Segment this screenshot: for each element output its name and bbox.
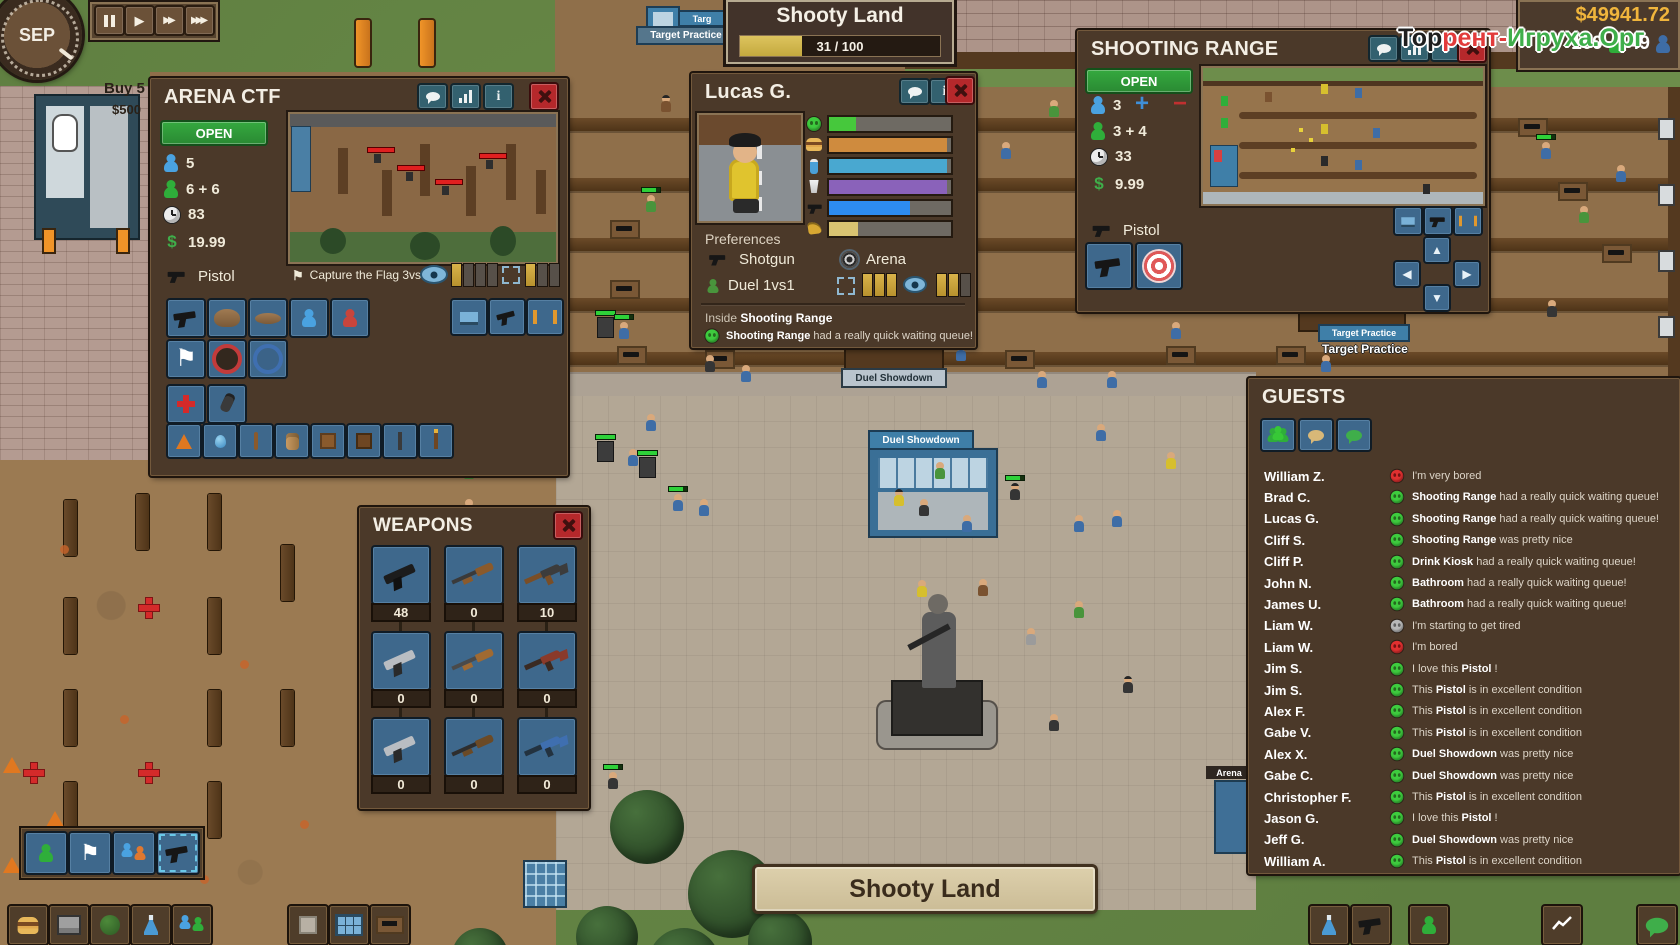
guest-row[interactable]: James U.Bathroom had a really quick wait… (1264, 594, 1674, 614)
item-slot-mound-small[interactable] (250, 300, 286, 336)
item-slot-pole[interactable] (384, 425, 416, 457)
guest-thought: This Pistol is in excellent condition (1412, 791, 1674, 803)
guest-row[interactable]: William Z.I'm very bored (1264, 466, 1674, 486)
mode-slot-bars (452, 264, 497, 286)
water-icon (215, 435, 226, 448)
guests-panel-title: GUESTS (1262, 386, 1345, 409)
filter-thoughts-neutral-button[interactable] (1300, 420, 1332, 450)
health-bar (1006, 476, 1024, 480)
workbench-icon (378, 918, 402, 932)
guest-thought: Bathroom had a really quick waiting queu… (1412, 598, 1674, 610)
guest-sprite[interactable] (1073, 515, 1085, 532)
guest-name: Gabe C. (1264, 768, 1390, 783)
team-slot-meeple-green[interactable] (26, 833, 66, 873)
expand-button[interactable] (837, 277, 855, 295)
weapon-count: 0 (373, 691, 429, 706)
visibility-button[interactable] (905, 278, 925, 291)
item-slot-grenade[interactable] (209, 386, 245, 422)
guest-thought: I'm starting to get tired (1412, 620, 1674, 632)
filter-guests-group-button[interactable] (1262, 420, 1294, 450)
guest-sprite[interactable] (961, 515, 973, 532)
need-happiness-icon (805, 117, 823, 131)
weapon-slot-pistol[interactable] (1087, 244, 1131, 288)
item-slot-pistol[interactable] (168, 300, 204, 336)
gun-table (612, 282, 638, 297)
wooden-pole (208, 690, 221, 746)
traffic-cone (3, 757, 21, 773)
team-slot-flag[interactable]: ⚑ (70, 833, 110, 873)
weapon-count: 10 (519, 605, 575, 620)
guest-row[interactable]: Cliff P.Drink Kiosk had a really quick w… (1264, 552, 1674, 572)
meeple-green-icon (1091, 122, 1105, 140)
side-slot-door[interactable] (1455, 208, 1481, 234)
health-bar (669, 487, 687, 491)
gate-post (356, 20, 370, 66)
window-icon (337, 916, 361, 934)
meeple-green-icon (707, 279, 718, 293)
guest-sprite[interactable] (918, 499, 930, 516)
guest-sprite[interactable] (698, 499, 710, 516)
guest-sprite[interactable] (627, 449, 639, 466)
weapon-count: 0 (373, 777, 429, 792)
guest-sprite[interactable] (916, 580, 928, 597)
guest-sprite[interactable] (1165, 452, 1177, 469)
guest-sprite[interactable] (1111, 510, 1123, 527)
guest-sprite[interactable] (977, 579, 989, 596)
weapon-slot-rifle[interactable] (519, 547, 575, 603)
guest-sprite[interactable] (645, 195, 657, 212)
smiley-icon (807, 117, 821, 131)
guest-location: Inside Shooting Range (705, 311, 832, 325)
tree (610, 790, 684, 864)
item-slot-figure-red[interactable] (332, 300, 368, 336)
guest-thought: Shooting Range had a really quick waitin… (705, 329, 973, 343)
door (1660, 186, 1673, 204)
weapon-slot-shotgun[interactable] (446, 633, 502, 689)
close-button[interactable] (531, 84, 557, 109)
weapon-rifle-image (521, 727, 573, 768)
guest-sprite[interactable] (645, 414, 657, 431)
mood-green-icon (1391, 812, 1404, 825)
item-slot-mound-large[interactable] (209, 300, 245, 336)
item-slot-crate-dark[interactable] (348, 425, 380, 457)
weapon-slot-pistol[interactable] (373, 719, 429, 775)
mood-green-icon (1391, 748, 1404, 761)
team-slot-meeple-duo[interactable] (114, 833, 154, 873)
health-bar (642, 188, 660, 192)
guest-row[interactable]: Brad C.Shooting Range had a really quick… (1264, 487, 1674, 507)
open-toggle-button[interactable]: OPEN (1087, 70, 1191, 92)
park-banner-text: Shooty Land (849, 875, 1000, 904)
pref-attraction-row: Arena (841, 251, 906, 268)
pref-mode-label: Duel 1vs1 (728, 277, 795, 294)
weapon-slot-shotgun[interactable] (446, 719, 502, 775)
guest-sprite[interactable] (1615, 165, 1627, 182)
side-slot-gun-rack[interactable] (1425, 208, 1451, 234)
guest-sprite[interactable] (1540, 142, 1552, 159)
guest-thought: This Pistol is in excellent condition (1412, 727, 1674, 739)
guest-name: Liam W. (1264, 618, 1390, 633)
gun-rack-icon (496, 308, 519, 326)
slot-bar-gray (476, 264, 485, 286)
guest-sprite[interactable] (618, 322, 630, 339)
stat-value: 83 (188, 206, 205, 223)
target-practice-sign: Target Practice (638, 28, 734, 43)
close-button[interactable] (555, 513, 581, 538)
guest-row[interactable]: John N.Bathroom had a really quick waiti… (1264, 573, 1674, 593)
statue-figure (922, 612, 956, 688)
item-slot-cone[interactable] (168, 425, 200, 457)
corner-brackets-icon (502, 266, 520, 284)
item-slot-water[interactable] (204, 425, 236, 457)
thoughts-positive-icon (1346, 430, 1362, 441)
playback-fastest-button[interactable]: ▶▶▶ (186, 7, 213, 34)
mound-large-icon (214, 309, 240, 327)
statue-pedestal (893, 682, 981, 734)
toolbar-window-button[interactable] (330, 906, 368, 944)
gun-table (1278, 348, 1304, 363)
open-toggle-button[interactable]: OPEN (162, 122, 266, 144)
toolbar-tile-button[interactable] (289, 906, 327, 944)
guest-name: John N. (1264, 576, 1390, 591)
guest-name: Alex F. (1264, 704, 1390, 719)
pistol-icon (1093, 224, 1112, 237)
toolbar-flask-button[interactable] (132, 906, 170, 944)
stat-value: 5 (186, 155, 194, 172)
toolbar-burger-button[interactable] (9, 906, 47, 944)
guest-row[interactable]: Gabe V.This Pistol is in excellent condi… (1264, 723, 1674, 743)
happy-smiley-icon (705, 329, 718, 342)
guest-portrait (699, 115, 801, 221)
item-slot-door[interactable] (528, 300, 562, 334)
toolbar-chart-button[interactable] (1543, 906, 1581, 944)
slot-bar-gray (464, 264, 473, 286)
traffic-cone (46, 811, 64, 827)
dpad-up-button[interactable]: ▲ (1425, 238, 1449, 262)
item-slot-barrel[interactable] (276, 425, 308, 457)
arena-label: Arena (1206, 766, 1252, 779)
guest-name: Brad C. (1264, 490, 1390, 505)
guest-thought: I love this Pistol ! (1412, 812, 1674, 824)
guest-name: Jim S. (1264, 661, 1390, 676)
month-label: SEP (19, 25, 55, 46)
weapon-pistol-image (375, 641, 427, 682)
thoughts-button[interactable] (419, 85, 446, 108)
arena-wall-fragment (1216, 782, 1248, 852)
arena-mode-label: Capture the Flag 3vs3 (310, 268, 428, 282)
weapon-pistol-image (375, 727, 427, 768)
guest-sprite[interactable] (1106, 371, 1118, 388)
traffic-cone (3, 857, 21, 873)
visibility-button[interactable] (422, 267, 446, 282)
gun-icon (1358, 915, 1384, 935)
guest-sprite[interactable] (1025, 628, 1037, 645)
thoughts-button[interactable] (901, 80, 928, 103)
guest-name: Christopher F. (1264, 790, 1390, 805)
weapon-count: 48 (373, 605, 429, 620)
need-toilet-bar (829, 180, 951, 194)
item-slot-figure-blue[interactable] (291, 300, 327, 336)
stat-value: 3 + 4 (1113, 123, 1147, 140)
item-slot-torch[interactable] (420, 425, 452, 457)
duel-showdown-sign-2: Duel Showdown (870, 432, 972, 448)
filter-thoughts-positive-button[interactable] (1338, 420, 1370, 450)
close-button[interactable] (947, 78, 973, 103)
guest-row[interactable]: Jim S.I love this Pistol ! (1264, 659, 1674, 679)
slot-bar-gray (961, 274, 970, 296)
item-slot-stick[interactable] (240, 425, 272, 457)
dollar-icon: $ (164, 232, 180, 252)
dpad-left-button[interactable]: ◀ (1395, 262, 1419, 286)
flag-icon: ⚑ (80, 842, 100, 864)
guest-sprite[interactable] (1048, 714, 1060, 731)
guest-row[interactable]: Lucas G.Shooting Range had a really quic… (1264, 509, 1674, 529)
guest-name: Jim S. (1264, 683, 1390, 698)
crate-icon (320, 433, 336, 449)
guest-row[interactable]: Christopher F.This Pistol is in excellen… (1264, 787, 1674, 807)
guest-sprite[interactable] (704, 355, 716, 372)
line-chart-icon (1551, 914, 1573, 937)
guest-row[interactable]: Liam W.I'm bored (1264, 637, 1674, 657)
item-slot-flag[interactable]: ⚑ (168, 341, 204, 377)
wooden-pole (136, 494, 149, 550)
park-banner: Shooty Land (752, 864, 1098, 914)
people-icon (179, 915, 205, 935)
bottle-icon (810, 159, 818, 174)
guest-name: Jason G. (1264, 811, 1390, 826)
playback-fast-forward-button[interactable]: ▶▶ (156, 7, 183, 34)
figure-red-icon (343, 309, 357, 327)
item-slot-medkit[interactable] (168, 386, 204, 422)
increase-lanes-button[interactable]: + (1135, 90, 1149, 118)
playback-play-button[interactable]: ▶ (126, 7, 153, 34)
flask-icon (1322, 915, 1336, 935)
guest-sprite[interactable] (672, 494, 684, 511)
glass-structure (525, 862, 565, 906)
chat-bubble-icon (908, 87, 922, 96)
bench-icon (1401, 217, 1415, 225)
gun-table (1520, 120, 1546, 135)
guest-sprite[interactable] (1000, 142, 1012, 159)
health-bar (1537, 135, 1555, 139)
toolbar-bubble-button[interactable] (1638, 906, 1676, 944)
play-icon: ▶▶ (163, 15, 175, 26)
guest-sprite[interactable] (1009, 483, 1021, 500)
mode-slot-bars-2 (526, 264, 559, 286)
guest-sprite[interactable] (893, 489, 905, 506)
guest-sprite[interactable] (1036, 371, 1048, 388)
wooden-pole (281, 545, 294, 601)
guest-thought: This Pistol is in excellent condition (1412, 684, 1674, 696)
wooden-pole (64, 690, 77, 746)
block-icon (59, 917, 79, 933)
gun-table (1604, 246, 1630, 261)
thoughts-button[interactable] (1370, 37, 1397, 60)
arena-ctf-panel: ARENA CTF i OPEN 56 + 683$19.99 (150, 78, 568, 476)
corner-brackets-icon (837, 277, 855, 295)
stat-row-meeple-green: 3 + 4 (1091, 122, 1147, 140)
stat-row-meeple-blue: 3 (1091, 96, 1121, 114)
team-slot-gun-selected[interactable] (158, 833, 198, 873)
range-weapon-label: Pistol (1123, 222, 1160, 239)
debris (60, 545, 69, 554)
guest-row[interactable]: William A.This Pistol is in excellent co… (1264, 851, 1674, 871)
gun-table (619, 348, 645, 363)
weapon-slot-shotgun[interactable] (446, 547, 502, 603)
item-slot-bench[interactable] (452, 300, 486, 334)
toolbar-bench-button[interactable] (371, 906, 409, 944)
play-icon: ▶▶▶ (191, 15, 208, 26)
guest-thought: This Pistol is in excellent condition (1412, 705, 1674, 717)
guest-row[interactable]: Jim S.This Pistol is in excellent condit… (1264, 680, 1674, 700)
decrease-lanes-button[interactable]: − (1173, 90, 1187, 118)
target-machine (640, 458, 655, 477)
guest-sprite[interactable] (660, 95, 672, 112)
stat-value: 9.99 (1115, 176, 1144, 193)
item-slot-gun-rack[interactable] (490, 300, 524, 334)
door-icon (1459, 216, 1477, 227)
weapon-slot-rifle[interactable] (519, 719, 575, 775)
meeple-green-icon (1422, 916, 1436, 934)
guest-sprite[interactable] (607, 772, 619, 789)
weapon-pistol-image (375, 555, 427, 596)
figure-blue-icon (302, 309, 316, 327)
guest-row[interactable]: Cliff S.Shooting Range was pretty nice (1264, 530, 1674, 550)
weapon-count: 0 (519, 777, 575, 792)
weapon-slot-pistol[interactable] (373, 633, 429, 689)
flask-icon (144, 915, 158, 935)
stat-row-clock: 83 (164, 206, 205, 223)
playback-pause-button[interactable] (96, 7, 123, 34)
guest-sprite[interactable] (1578, 206, 1590, 223)
tile-icon (299, 916, 317, 934)
weapon-slot-pistol[interactable] (373, 547, 429, 603)
weapon-count: 0 (446, 691, 502, 706)
info-icon: i (943, 84, 947, 100)
pref-attraction-label: Arena (866, 251, 906, 268)
target-practice-label: Target Practice (1322, 342, 1408, 356)
pref-slot-bars (863, 274, 896, 296)
need-happiness-bar (829, 117, 951, 131)
toolbar-meeple-green-button[interactable] (1410, 906, 1448, 944)
guest-sprite[interactable] (1095, 424, 1107, 441)
guest-row[interactable]: Alex F.This Pistol is in excellent condi… (1264, 701, 1674, 721)
guest-sprite[interactable] (740, 365, 752, 382)
slot-bar-gold (887, 274, 896, 296)
mood-green-icon (1391, 684, 1404, 697)
guest-sprite[interactable] (934, 462, 946, 479)
guest-row[interactable]: Liam W.I'm starting to get tired (1264, 616, 1674, 636)
stats-button[interactable] (452, 85, 479, 108)
mood-red-icon (1391, 641, 1404, 654)
wooden-pole (208, 598, 221, 654)
stat-value: 3 (1113, 97, 1121, 114)
guest-thought: Shooting Range had a really quick waitin… (1412, 513, 1674, 525)
mood-green-icon (1391, 855, 1404, 868)
park-header: Shooty Land 31 / 100 (726, 0, 954, 64)
pistol-icon (168, 270, 187, 283)
stat-value: 6 + 6 (186, 181, 220, 198)
arena-mode-row: ⚑ Capture the Flag 3vs3 (292, 268, 428, 282)
debris (120, 715, 129, 724)
stat-value: 19.99 (188, 234, 226, 251)
guest-row[interactable]: Jason G.I love this Pistol ! (1264, 808, 1674, 828)
guest-thought: I'm bored (1412, 641, 1674, 653)
weapon-slot-rifle[interactable] (519, 633, 575, 689)
weapon-rifle-image (521, 641, 573, 682)
need-hunger-bar (829, 138, 951, 152)
debris (300, 820, 309, 829)
guest-sprite[interactable] (1122, 676, 1134, 693)
medkit-cross (139, 763, 159, 783)
pistol-icon (1094, 255, 1124, 277)
dpad-right-button[interactable]: ▶ (1455, 262, 1479, 286)
guest-thought: I love this Pistol ! (1412, 663, 1674, 675)
item-slot-crate[interactable] (312, 425, 344, 457)
mood-green-icon (1391, 534, 1404, 547)
dpad-down-button[interactable]: ▼ (1425, 286, 1449, 310)
buy-label[interactable]: Buy 5 (104, 80, 145, 97)
item-slot-ring-blue[interactable] (250, 341, 286, 377)
guest-thought: Shooting Range had a really quick waitin… (1412, 491, 1674, 503)
mood-red-icon (1391, 470, 1404, 483)
guest-name: Gabe V. (1264, 725, 1390, 740)
range-weapon-row: Pistol (1091, 222, 1160, 239)
guest-row[interactable]: Jeff G.Duel Showdown was pretty nice (1264, 830, 1674, 850)
item-slot-ring-red[interactable] (209, 341, 245, 377)
money-value: $49941.72 (1518, 0, 1680, 27)
stat-row-meeple-green: 6 + 6 (164, 180, 220, 198)
door (1660, 120, 1673, 138)
guest-row[interactable]: Gabe C.Duel Showdown was pretty nice (1264, 766, 1674, 786)
toolbar-block-button[interactable] (50, 906, 88, 944)
health-bar (604, 765, 622, 769)
guest-row[interactable]: Alex X.Duel Showdown was pretty nice (1264, 744, 1674, 764)
guest-sprite[interactable] (1320, 355, 1332, 372)
burger-icon (18, 917, 39, 934)
shooting-range-panel: SHOOTING RANGE i OPEN 33 + 433$9.99 + − … (1077, 30, 1489, 312)
weapon-count: 0 (446, 777, 502, 792)
cone-icon (176, 434, 192, 449)
dollar-icon: $ (1091, 174, 1107, 194)
guest-sprite[interactable] (1546, 300, 1558, 317)
meeple-blue-icon (1091, 96, 1105, 114)
mound-small-icon (255, 313, 281, 324)
guest-sprite[interactable] (1073, 601, 1085, 618)
toolbar-flask-blue-button[interactable] (1310, 906, 1348, 944)
guest-sprite[interactable] (1170, 322, 1182, 339)
guest-thought: Bathroom had a really quick waiting queu… (1412, 577, 1674, 589)
guest-sprite[interactable] (1048, 100, 1060, 117)
pref-mode-row: Duel 1vs1 (707, 277, 795, 294)
meeple-green-icon (164, 180, 178, 198)
weapon-count: 0 (519, 691, 575, 706)
side-slot-bench[interactable] (1395, 208, 1421, 234)
need-thirst-icon (805, 159, 823, 174)
need-fun-icon (805, 201, 823, 216)
chat-bubble-icon (1377, 44, 1391, 53)
toolbar-gun-button[interactable] (1352, 906, 1390, 944)
guest-detail-panel: Lucas G. i Preferences Shotgun Arena Due… (691, 73, 976, 348)
expand-button[interactable] (502, 266, 520, 284)
info-button[interactable]: i (485, 85, 512, 108)
toolbar-people-button[interactable] (173, 906, 211, 944)
toolbar-tree-button[interactable] (91, 906, 129, 944)
need-toilet-icon (805, 180, 823, 193)
weapons-panel: WEAPONS 48010000000 (359, 507, 589, 809)
site-watermark: Торрент-Игруха.Орг (1398, 24, 1645, 53)
target-slot[interactable] (1137, 244, 1181, 288)
